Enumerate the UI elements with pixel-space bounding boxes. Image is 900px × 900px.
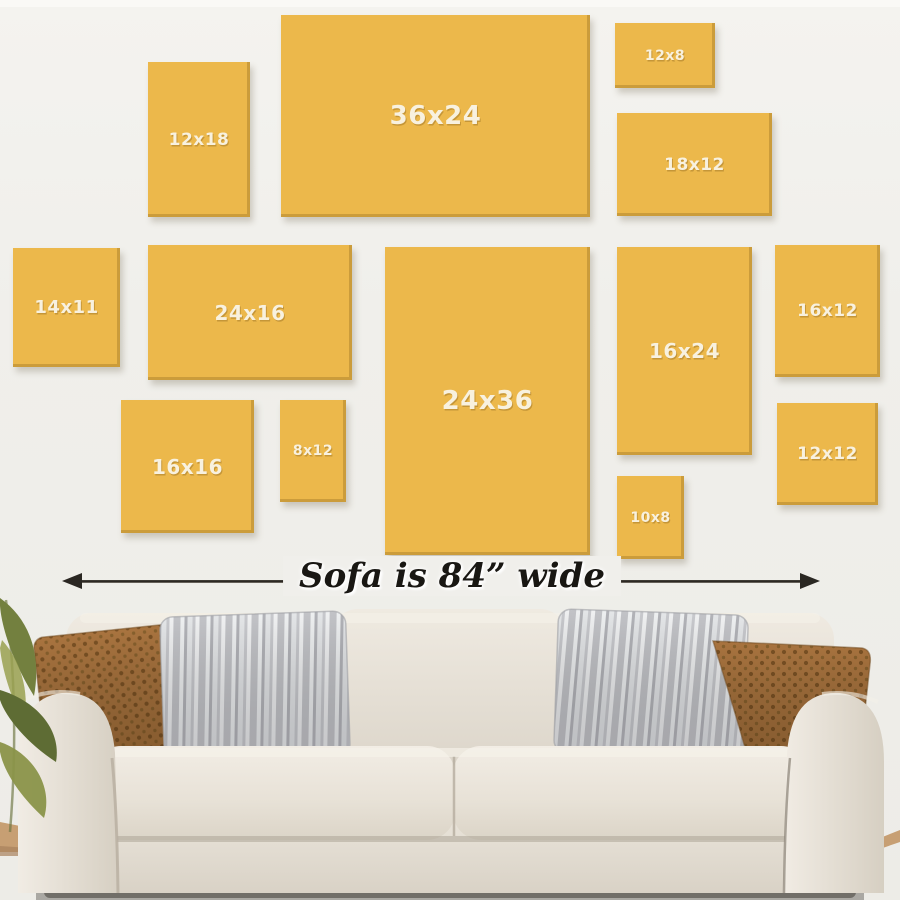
frame-size-label: 10x8 bbox=[630, 510, 670, 526]
frame-size-label: 24x36 bbox=[442, 386, 534, 416]
sofa-arm-right bbox=[783, 693, 884, 893]
frame-size-label: 16x12 bbox=[797, 301, 858, 321]
pillow-gray-right bbox=[554, 609, 749, 760]
frame-18x12: 18x12 bbox=[617, 113, 772, 216]
frame-16x12: 16x12 bbox=[775, 245, 880, 377]
frame-12x18: 12x18 bbox=[148, 62, 250, 217]
frame-size-label: 8x12 bbox=[293, 443, 333, 459]
frames-layer: 12x1836x2412x818x1214x1124x1624x3616x241… bbox=[0, 0, 900, 600]
pillow-gray-left bbox=[159, 611, 350, 763]
frame-size-label: 14x11 bbox=[34, 297, 98, 318]
frame-14x11: 14x11 bbox=[13, 248, 120, 367]
frame-size-label: 24x16 bbox=[214, 301, 285, 325]
frame-36x24: 36x24 bbox=[281, 15, 590, 217]
frame-10x8: 10x8 bbox=[617, 476, 684, 559]
frame-size-label: 18x12 bbox=[664, 155, 725, 175]
frame-size-label: 12x8 bbox=[645, 48, 685, 64]
frame-size-label: 36x24 bbox=[390, 101, 482, 131]
frame-size-label: 12x18 bbox=[169, 130, 230, 150]
frame-8x12: 8x12 bbox=[280, 400, 346, 502]
sofa-illustration bbox=[0, 592, 900, 900]
frame-24x36: 24x36 bbox=[385, 247, 590, 555]
frame-24x16: 24x16 bbox=[148, 245, 352, 380]
wall-scene: 12x1836x2412x818x1214x1124x1624x3616x241… bbox=[0, 0, 900, 900]
frame-16x16: 16x16 bbox=[121, 400, 254, 533]
frame-12x8: 12x8 bbox=[615, 23, 715, 88]
frame-size-label: 16x16 bbox=[152, 455, 223, 479]
frame-16x24: 16x24 bbox=[617, 247, 752, 455]
frame-12x12: 12x12 bbox=[777, 403, 878, 505]
frame-size-label: 12x12 bbox=[797, 444, 858, 464]
frame-size-label: 16x24 bbox=[649, 339, 720, 363]
